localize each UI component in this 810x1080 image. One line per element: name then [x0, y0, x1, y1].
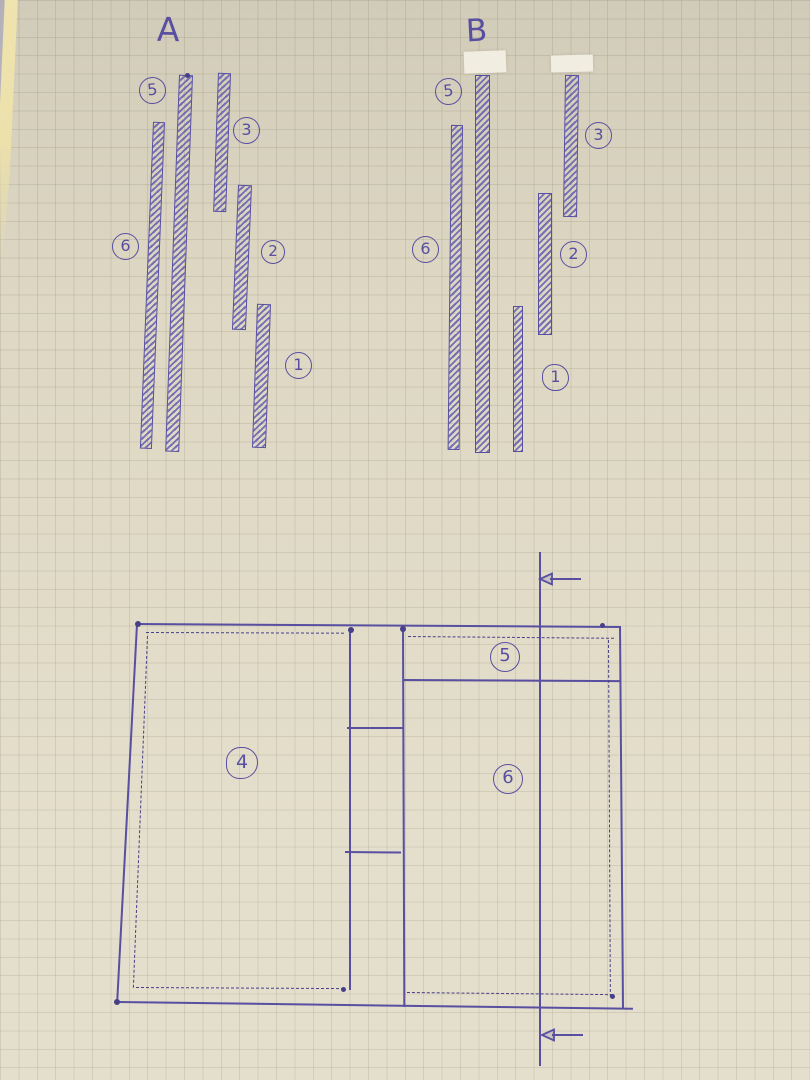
panel-5-band-line	[404, 679, 620, 682]
strip-a-1	[252, 304, 271, 448]
strip-b-6	[448, 125, 463, 450]
section-label-a: A	[157, 13, 180, 46]
strip-b-3	[563, 75, 579, 217]
graph-paper-page: A 5 3 6 2 1 B 5 3 6 2 1	[0, 0, 810, 1080]
seam-dashed-top-right	[408, 636, 614, 639]
circled-label-a-3: 3	[233, 117, 260, 144]
circled-label-b-1: 1	[542, 364, 569, 391]
strip-a-2	[232, 185, 252, 330]
circled-label-b-3: 3	[585, 122, 612, 149]
arrow-left-icon	[539, 1025, 585, 1045]
tape-patch	[551, 54, 593, 72]
spine-divider-lower	[345, 851, 401, 853]
corner-dot	[135, 621, 141, 627]
strip-b-2	[538, 193, 552, 335]
strip-a-6	[140, 122, 165, 449]
corner-dot	[400, 626, 406, 632]
circled-label-b-6: 6	[412, 236, 439, 263]
seam-dashed-bottom-right	[407, 992, 613, 995]
circled-label-a-6: 6	[112, 233, 139, 260]
corner-dot	[600, 623, 605, 628]
circled-label-panel-4: 4	[226, 747, 258, 779]
spine-fold-line-left	[349, 629, 351, 990]
cover-outline-bottom	[117, 1001, 633, 1010]
seam-dashed-top-left	[146, 632, 344, 634]
circled-label-a-5: 5	[138, 76, 168, 106]
circled-label-panel-6: 6	[493, 764, 523, 794]
cover-outline-right	[619, 626, 624, 1009]
corner-dot	[114, 999, 120, 1005]
corner-dot	[341, 987, 346, 992]
circled-label-a-1: 1	[285, 352, 312, 379]
circled-label-b-2: 2	[560, 241, 587, 268]
strip-b-5	[475, 75, 490, 453]
seam-dashed-right	[608, 640, 611, 997]
tape-patch	[464, 50, 507, 73]
ink-dot	[185, 73, 190, 78]
circled-label-a-2: 2	[261, 240, 285, 264]
page-under-sheet-edge	[0, 0, 18, 266]
circled-label-b-5: 5	[434, 77, 464, 107]
measure-line	[539, 552, 541, 1066]
circled-label-panel-5: 5	[490, 642, 520, 672]
strip-a-3	[213, 73, 231, 212]
spine-fold-line-right	[402, 629, 405, 1007]
strip-a-5	[165, 75, 193, 452]
spine-divider-upper	[347, 727, 404, 729]
section-label-b: B	[465, 15, 488, 47]
cover-outline-top	[137, 623, 621, 628]
arrow-left-icon	[537, 569, 583, 589]
seam-dashed-bottom-left	[136, 987, 344, 989]
seam-dashed-left	[133, 636, 148, 988]
strip-b-1	[513, 306, 523, 452]
corner-dot	[610, 994, 615, 999]
corner-dot	[348, 627, 354, 633]
